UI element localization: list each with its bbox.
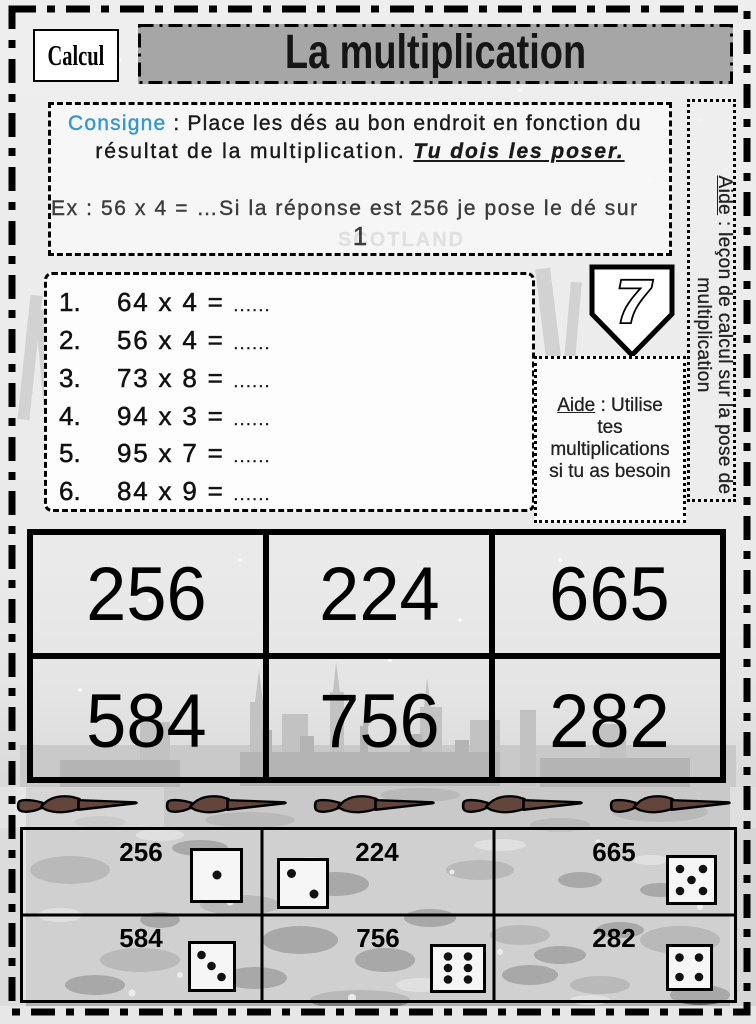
svg-text:7: 7 (616, 268, 652, 335)
